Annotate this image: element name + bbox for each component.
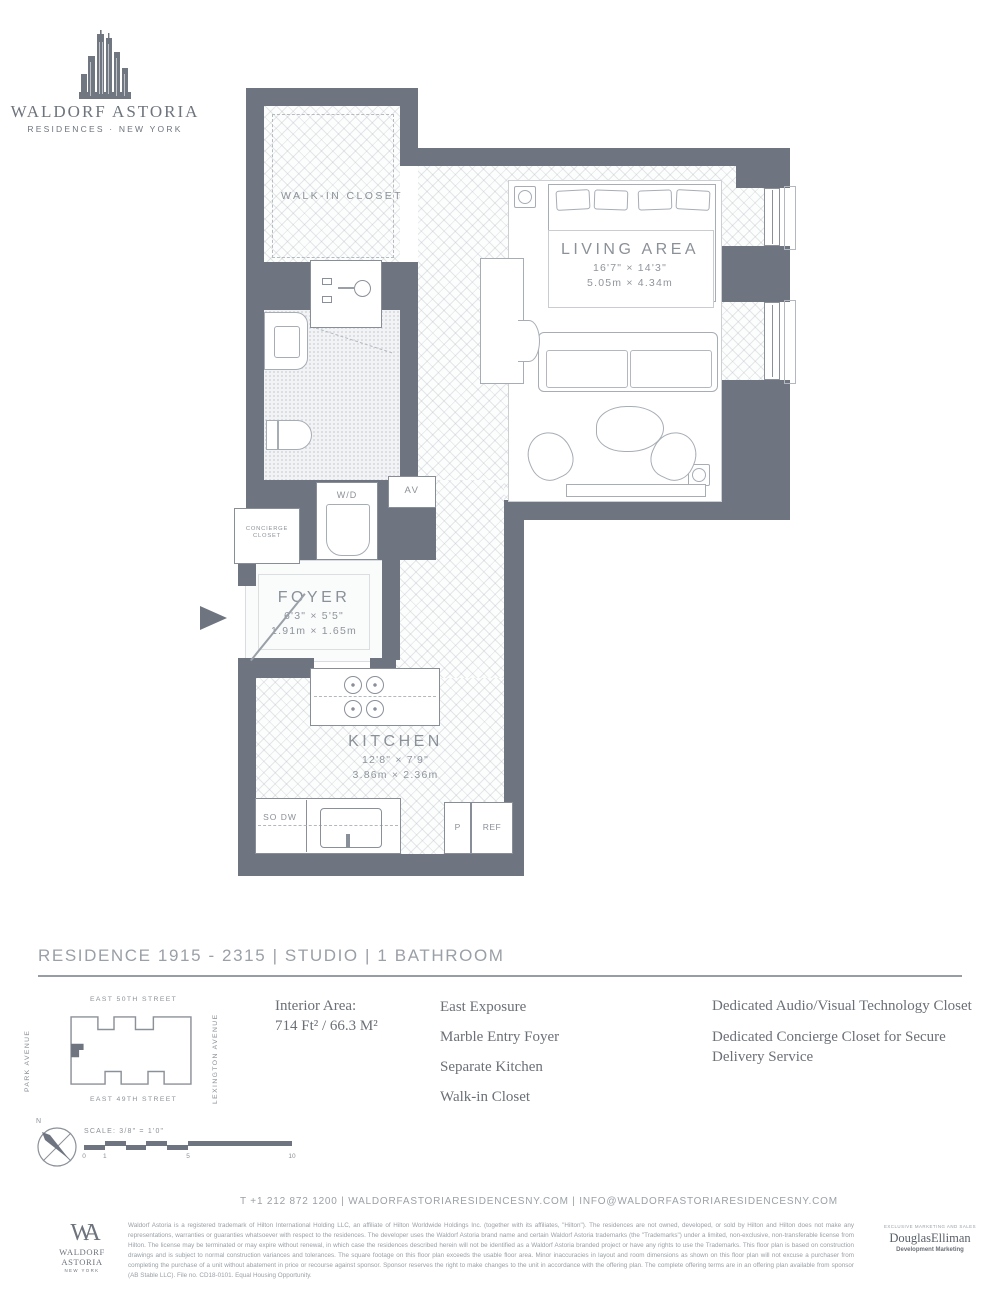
desk-chair (518, 320, 540, 362)
toilet-bowl (278, 420, 312, 450)
stove-burner-icon (344, 676, 362, 694)
scale-segment (105, 1141, 126, 1146)
speaker-icon (514, 186, 536, 208)
feature-item: Walk-in Closet (440, 1082, 670, 1112)
scale-label: SCALE: 3/8" = 1'0" (84, 1128, 164, 1135)
wall (504, 500, 726, 520)
building-footprint (71, 1017, 191, 1084)
stove-burner-icon (344, 700, 362, 718)
so-dw-text: SO DW (263, 812, 297, 822)
living-dims-ft: 16'7" × 14'3" (593, 262, 667, 275)
wall (382, 560, 400, 660)
counter-divider (306, 800, 307, 852)
feature-list-right: Dedicated Audio/Visual Technology Closet… (712, 996, 974, 1078)
footer-brand-name: WALDORF ASTORIA (38, 1247, 126, 1267)
sofa-cushion (630, 350, 712, 388)
closet-rod-dashes (272, 114, 394, 258)
scale-tick: 0 (82, 1153, 86, 1160)
legal-disclaimer: Waldorf Astoria is a registered trademar… (128, 1221, 854, 1281)
building-logo-icon (70, 30, 140, 102)
sofa-cushion (546, 350, 628, 388)
scale-tick: 5 (186, 1153, 190, 1160)
scale-bar: 0 1 5 10 (84, 1141, 292, 1150)
north-label: N (36, 1118, 41, 1125)
so-dw-label: SO DW (255, 812, 305, 824)
pantry-label: P (444, 822, 471, 833)
wall (238, 678, 256, 876)
sink-basin (274, 326, 300, 358)
shower (310, 260, 382, 328)
foyer-dims-ft: 6'3" × 5'5" (284, 610, 344, 623)
interior-area-label: Interior Area: (275, 996, 378, 1016)
compass-icon (36, 1126, 78, 1173)
wall (238, 854, 524, 876)
refrigerator-label: REF (471, 822, 513, 833)
foyer-label-group: FOYER 6'3" × 5'5" 1.91m × 1.65m (250, 588, 378, 638)
toilet-tank (266, 420, 278, 450)
scale-tick: 10 (288, 1153, 295, 1160)
window (764, 188, 780, 246)
floorplan-sheet: WALDORF ASTORIA RESIDENCES · NEW YORK (0, 0, 1000, 1294)
kitchen-dims-ft: 12'8" × 7'9" (362, 754, 429, 767)
walk-in-closet-label: WALK-IN CLOSET (274, 190, 410, 203)
scale-tick: 1 (103, 1153, 107, 1160)
foyer-dims-m: 1.91m × 1.65m (271, 625, 357, 638)
scale-segment (126, 1145, 147, 1150)
kitchen-dims-m: 3.86m × 2.36m (353, 769, 439, 782)
wall (400, 148, 748, 166)
marketing-sub: Development Marketing (874, 1247, 986, 1253)
wall (722, 380, 790, 520)
living-area-label: LIVING AREA (561, 240, 699, 260)
entry-arrow-icon (200, 606, 227, 630)
feature-item: Dedicated Concierge Closet for Secure De… (712, 1027, 974, 1067)
interior-area-value: 714 Ft² / 66.3 M² (275, 1016, 378, 1036)
pillow (594, 189, 629, 210)
faucet (346, 834, 350, 847)
kitchen-label-group: KITCHEN 12'8" × 7'9" 3.86m × 2.36m (288, 732, 503, 782)
pillow (555, 189, 590, 211)
brand-subtitle: RESIDENCES · NEW YORK (0, 124, 210, 134)
window (764, 302, 780, 380)
wall (246, 88, 264, 480)
shower-head-icon (354, 280, 371, 297)
washer-dryer-appliance (326, 504, 370, 556)
footer-brand: WA WALDORF ASTORIA NEW YORK (38, 1222, 126, 1273)
wall (736, 148, 790, 188)
stove-burner-icon (366, 700, 384, 718)
marketing-label: EXCLUSIVE MARKETING AND SALES (874, 1224, 986, 1229)
concierge-closet-label: CONCIERGE CLOSET (236, 526, 298, 540)
pillow (638, 189, 673, 210)
footer-brand-sub: NEW YORK (38, 1268, 126, 1273)
wall (246, 88, 418, 106)
stove-burner-icon (366, 676, 384, 694)
feature-item: East Exposure (440, 992, 670, 1022)
marketing-brand: DouglasElliman (874, 1231, 986, 1246)
divider-rule (38, 975, 962, 977)
washer-dryer-label: W/D (316, 490, 378, 501)
av-closet-label: AV (388, 485, 436, 497)
brand-name: WALDORF ASTORIA (0, 102, 210, 122)
kitchen-label: KITCHEN (348, 732, 443, 752)
wall (238, 658, 314, 678)
window-sill (784, 186, 796, 250)
feature-item: Dedicated Audio/Visual Technology Closet (712, 996, 974, 1016)
avenue-left-label: PARK AVENUE (24, 1012, 31, 1092)
feature-item: Marble Entry Foyer (440, 1022, 670, 1052)
feature-item: Separate Kitchen (440, 1052, 670, 1082)
kitchen-sink (320, 808, 382, 848)
feature-list: East Exposure Marble Entry Foyer Separat… (440, 992, 670, 1112)
wa-monogram: WA (38, 1222, 126, 1244)
credenza (566, 484, 706, 497)
shower-valve (322, 296, 332, 303)
contact-line: T +1 212 872 1200 | WALDORFASTORIARESIDE… (240, 1196, 838, 1207)
living-dims-m: 5.05m × 4.34m (587, 277, 673, 290)
unit-highlight (71, 1044, 84, 1057)
pillow (675, 189, 710, 211)
island-centerline (314, 696, 436, 697)
residence-title: RESIDENCE 1915 - 2315 | STUDIO | 1 BATHR… (38, 946, 505, 966)
street-top-label: EAST 50TH STREET (90, 996, 177, 1003)
avenue-right-label: LEXINGTON AVENUE (212, 1000, 219, 1104)
floor-plan: WALK-IN CLOSET CONCIERGE CLOSET W/D AV F… (198, 82, 810, 884)
wall (400, 262, 418, 480)
scale-segment (167, 1145, 188, 1150)
window-sill (784, 300, 796, 384)
site-map (56, 1008, 206, 1098)
marketing-block: EXCLUSIVE MARKETING AND SALES DouglasEll… (874, 1224, 986, 1253)
interior-area: Interior Area: 714 Ft² / 66.3 M² (275, 996, 378, 1036)
shower-valve (322, 278, 332, 285)
shower-arm (338, 287, 355, 289)
wall-column (722, 246, 790, 302)
living-label-group: LIVING AREA 16'7" × 14'3" 5.05m × 4.34m (548, 240, 712, 290)
scale-segment (84, 1145, 105, 1150)
scale-segment (188, 1141, 292, 1146)
foyer-label: FOYER (278, 588, 351, 608)
scale-segment (146, 1141, 167, 1146)
